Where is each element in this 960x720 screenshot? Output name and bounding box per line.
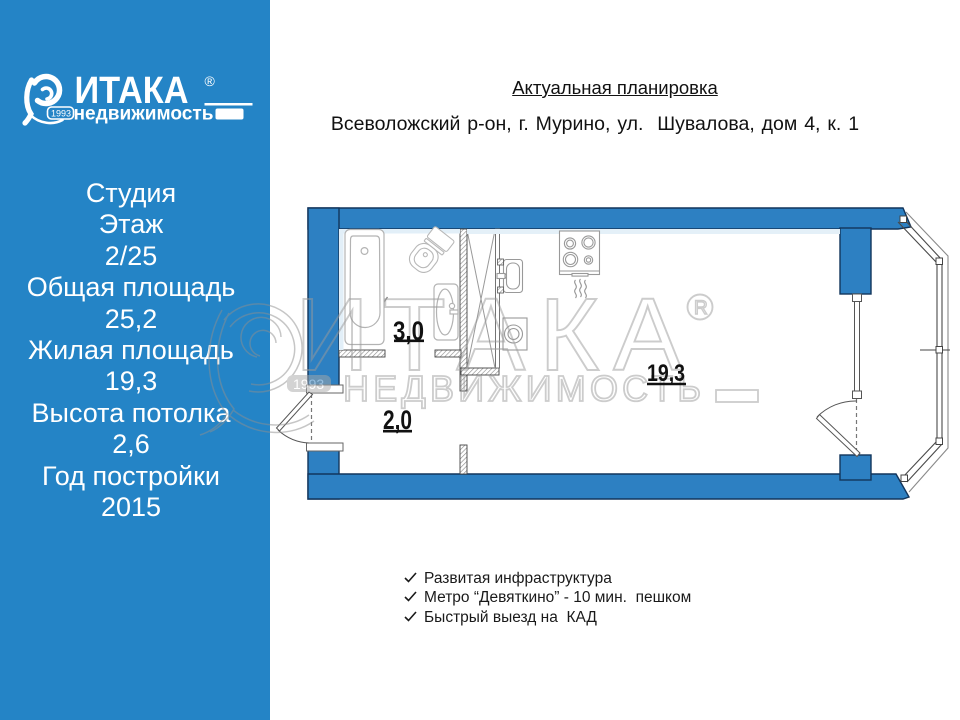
svg-text:R: R [694,298,708,319]
